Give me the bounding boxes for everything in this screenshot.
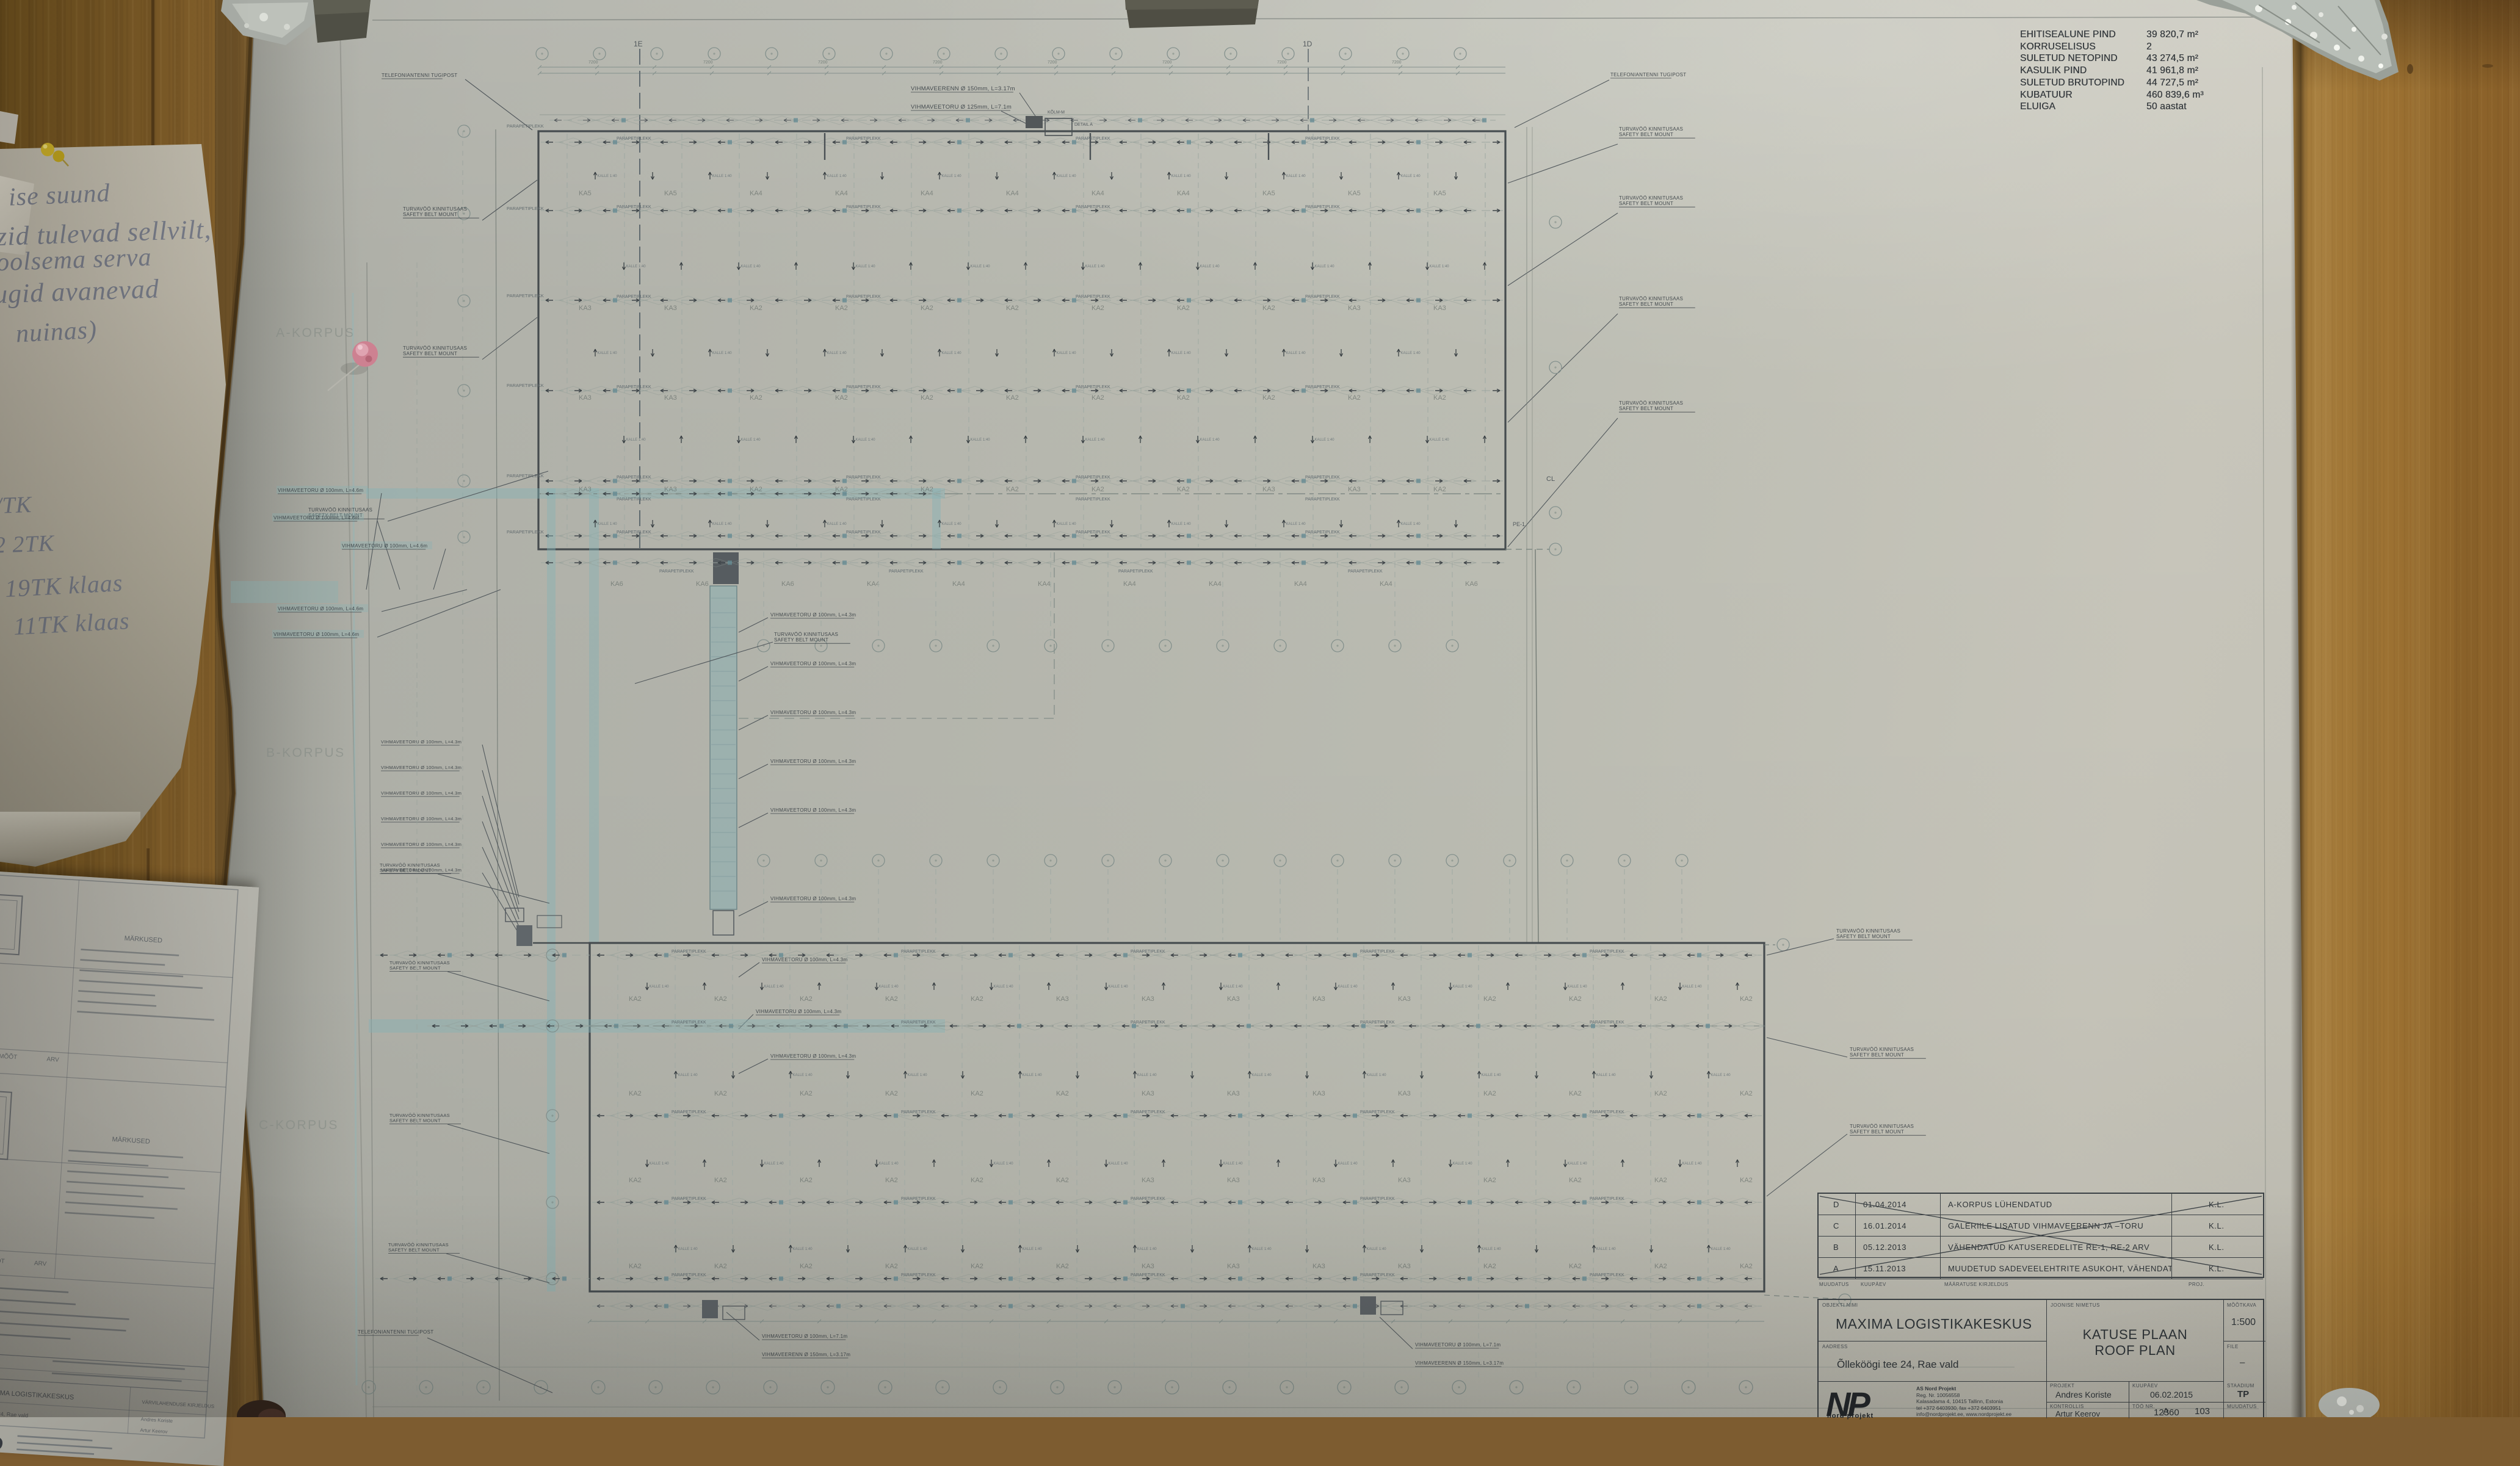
svg-text:Artur Keerov: Artur Keerov (140, 1428, 167, 1435)
svg-text:Andres Koriste: Andres Koriste (140, 1417, 173, 1424)
svg-text:NP: NP (0, 1428, 4, 1466)
